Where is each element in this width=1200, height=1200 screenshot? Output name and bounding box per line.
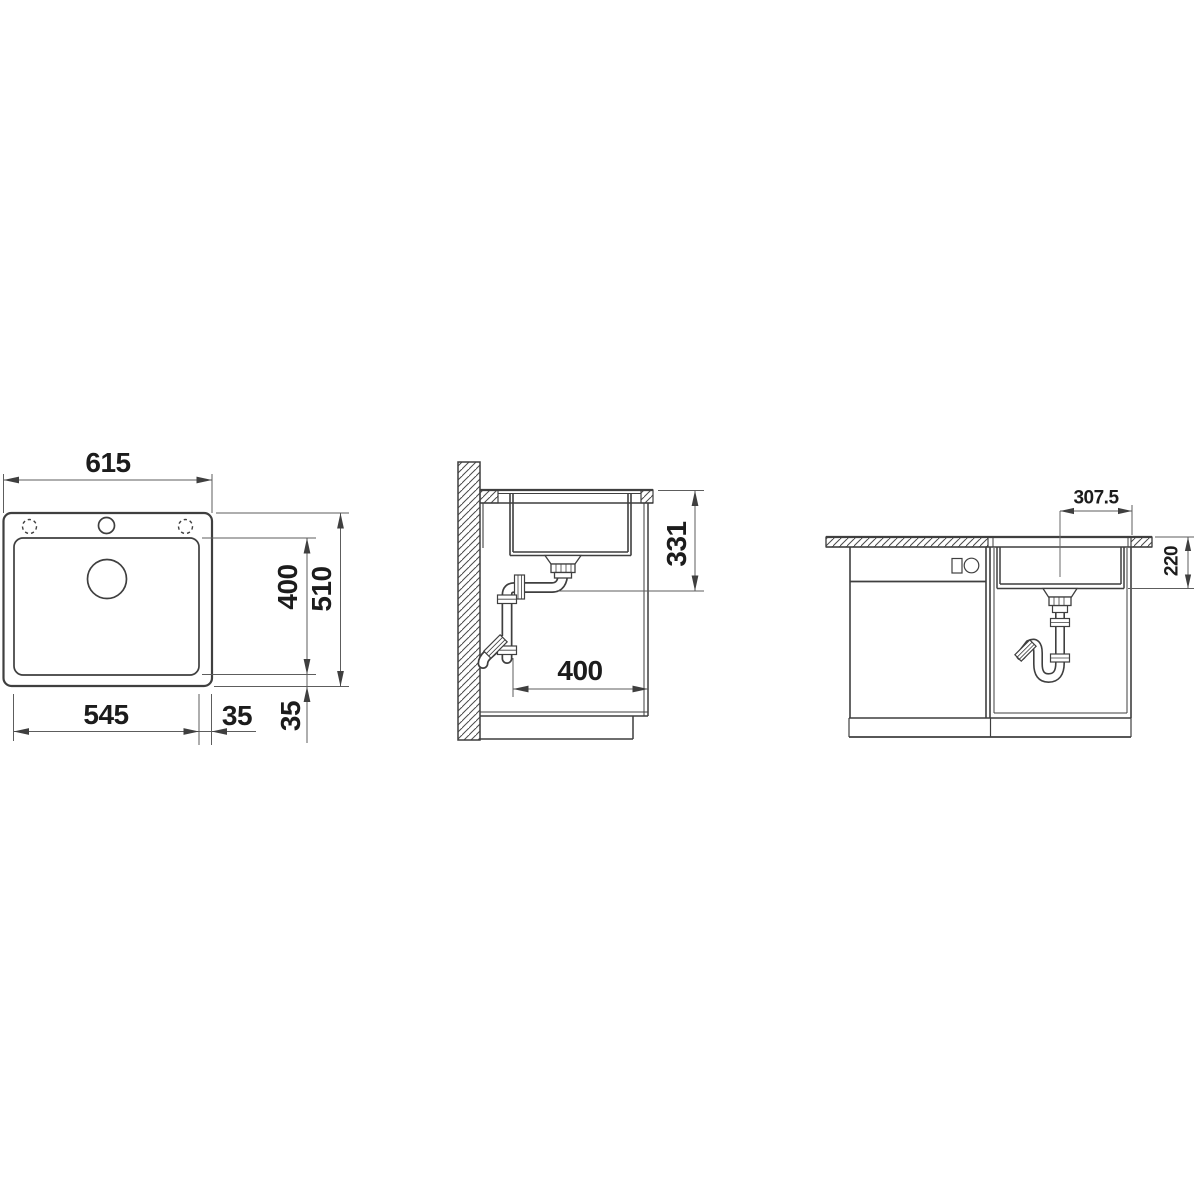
dim-bowl-height: 220 bbox=[1163, 546, 1182, 576]
dim-right-trim: 35 bbox=[222, 702, 252, 730]
dim-outlet-height: 331 bbox=[663, 521, 691, 566]
dim-center-to-edge: 307.5 bbox=[1073, 489, 1118, 508]
dim-overall-depth: 510 bbox=[308, 566, 336, 611]
tap-hole-center-icon bbox=[99, 518, 115, 534]
side-view bbox=[458, 462, 704, 740]
dishwasher-front bbox=[850, 547, 986, 718]
dim-overall-width: 615 bbox=[85, 449, 130, 477]
drain-hole-icon bbox=[88, 560, 127, 599]
plinth bbox=[849, 718, 1131, 737]
dim-inner-depth: 400 bbox=[557, 657, 602, 685]
technical-drawing-sheet: 615 545 35 400 510 35 331 400 307.5 220 bbox=[0, 0, 1200, 1200]
countertop-front bbox=[826, 537, 1152, 547]
dishwasher-button-square-icon bbox=[952, 559, 962, 574]
dishwasher-knob-icon bbox=[964, 558, 979, 573]
countertop-section bbox=[480, 490, 653, 503]
dim-bottom-trim: 35 bbox=[277, 701, 305, 731]
drain-trap-front bbox=[1015, 589, 1077, 679]
sink-outline bbox=[4, 513, 213, 686]
dim-bowl-depth: 400 bbox=[274, 564, 302, 609]
bowl-front bbox=[997, 511, 1124, 589]
drain-siphon bbox=[483, 556, 581, 664]
strainer bbox=[545, 556, 581, 579]
tap-holes bbox=[23, 518, 193, 534]
wall-section bbox=[458, 462, 480, 740]
tap-hole-left-icon bbox=[23, 520, 37, 534]
strainer-front bbox=[1043, 589, 1077, 606]
dim-bowl-width: 545 bbox=[83, 701, 128, 729]
tap-hole-right-icon bbox=[179, 520, 193, 534]
drawing-linework bbox=[0, 0, 1200, 1200]
front-view bbox=[826, 505, 1194, 737]
bowl-outline bbox=[14, 538, 199, 675]
